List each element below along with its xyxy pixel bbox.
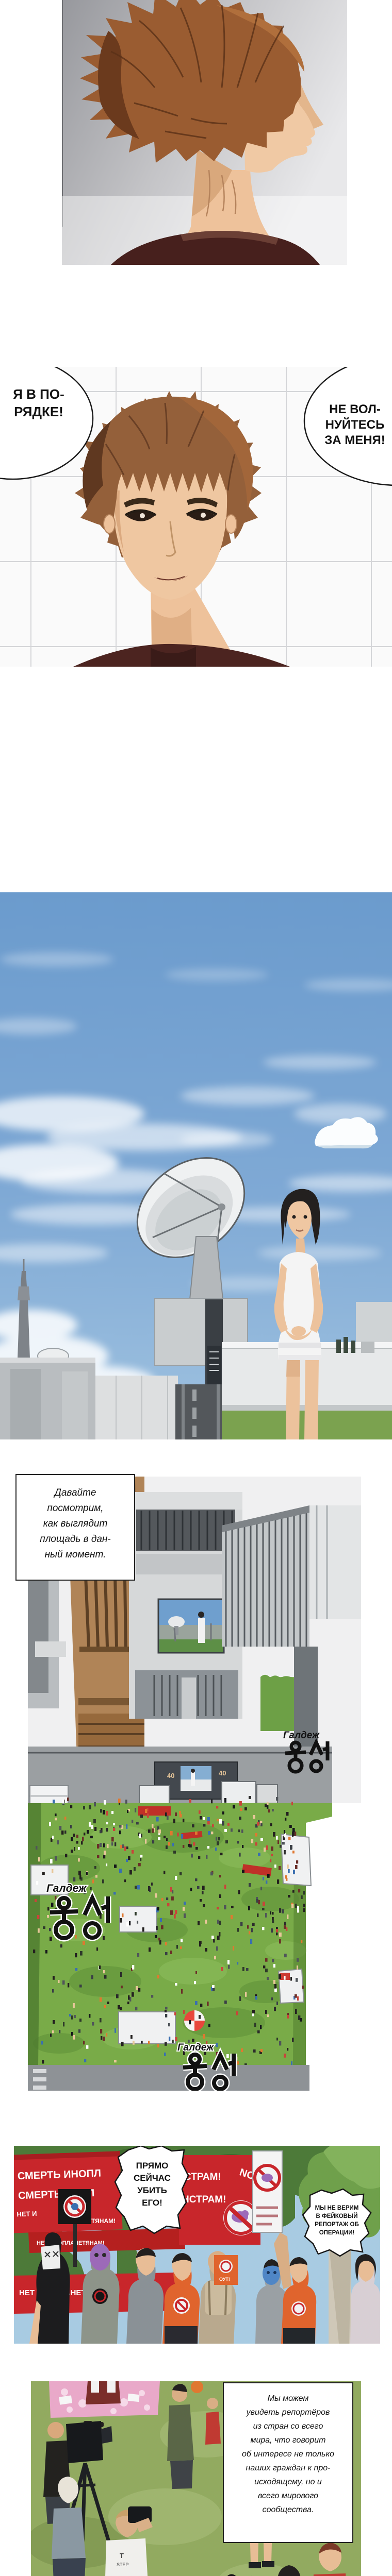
svg-text:ОУТ!: ОУТ! [219, 2277, 230, 2282]
svg-text:STEP: STEP [117, 2562, 129, 2567]
svg-text:ТЯНАМ!: ТЯНАМ! [91, 2217, 116, 2225]
svg-text:СТРАМ!: СТРАМ! [184, 2172, 221, 2182]
svg-text:ЗА МЕНЯ!: ЗА МЕНЯ! [324, 433, 385, 447]
svg-text:Галдеж: Галдеж [283, 1730, 320, 1741]
svg-text:НСТРАМ!: НСТРАМ! [182, 2194, 226, 2205]
svg-text:НЕТ И: НЕТ И [17, 2210, 37, 2218]
svg-text:РЯДКЕ!: РЯДКЕ! [14, 404, 63, 419]
svg-text:40: 40 [167, 1772, 174, 1780]
svg-text:ОПЕРАЦИИ!: ОПЕРАЦИИ! [319, 2230, 355, 2236]
svg-text:НУЙТЕСЬ: НУЙТЕСЬ [325, 417, 385, 432]
svg-text:40: 40 [219, 1769, 226, 1777]
svg-text:МЫ НЕ ВЕРИМ: МЫ НЕ ВЕРИМ [315, 2205, 359, 2211]
svg-text:T: T [120, 2552, 124, 2560]
svg-text:Галдеж: Галдеж [46, 1883, 87, 1894]
svg-text:ЕГО!: ЕГО! [142, 2198, 162, 2208]
svg-text:СЕЙЧАС: СЕЙЧАС [134, 2173, 171, 2183]
svg-text:Я В ПО-: Я В ПО- [13, 386, 64, 402]
svg-text:РЕПОРТАЖ ОБ: РЕПОРТАЖ ОБ [315, 2222, 358, 2228]
svg-text:УБИТЬ: УБИТЬ [137, 2185, 167, 2195]
svg-text:В ФЕЙКОВЫЙ: В ФЕЙКОВЫЙ [316, 2213, 357, 2219]
svg-text:НЕ ВОЛ-: НЕ ВОЛ- [329, 402, 381, 416]
svg-text:ПРЯМО: ПРЯМО [136, 2161, 169, 2171]
